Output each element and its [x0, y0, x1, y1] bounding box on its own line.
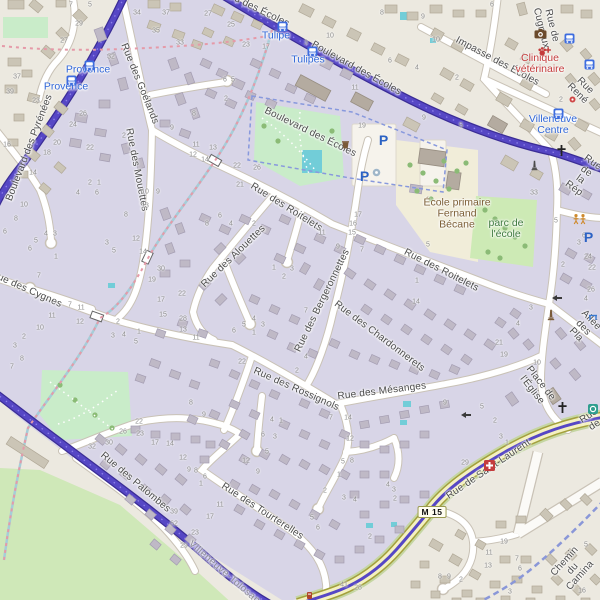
building: [521, 556, 531, 563]
tree-icon: [446, 186, 451, 191]
tree-icon: [329, 128, 334, 133]
building: [360, 471, 369, 478]
building: [453, 10, 464, 17]
building: [581, 10, 592, 18]
tree-icon: [502, 225, 507, 230]
building: [99, 100, 110, 108]
building: [131, 426, 140, 433]
building: [476, 10, 486, 17]
building: [8, 0, 24, 9]
tree-icon: [428, 196, 433, 201]
building: [501, 596, 510, 600]
tree-icon: [407, 162, 412, 167]
tree-icon: [420, 170, 425, 175]
small-park: [3, 17, 48, 38]
building: [380, 471, 389, 478]
building: [500, 556, 510, 563]
building: [380, 446, 389, 453]
building: [171, 433, 180, 440]
pool: [366, 523, 373, 528]
tree-icon: [482, 207, 487, 212]
building: [8, 58, 21, 66]
building: [561, 5, 573, 13]
building: [94, 128, 106, 137]
building: [180, 260, 190, 267]
pool: [108, 283, 115, 288]
tree-icon: [454, 168, 459, 173]
tree-icon: [275, 138, 280, 143]
building: [360, 511, 369, 518]
tree-icon: [492, 216, 497, 221]
building: [359, 420, 369, 428]
building: [14, 114, 24, 121]
building: [418, 148, 446, 166]
map-canvas[interactable]: Boulevard des PyrénéesBoulevard des Écol…: [0, 0, 600, 600]
building: [151, 431, 160, 438]
building: [400, 441, 409, 448]
building: [8, 139, 18, 146]
building: [170, 3, 181, 11]
building: [335, 556, 344, 563]
building: [375, 536, 384, 543]
building: [400, 496, 409, 503]
building: [440, 576, 450, 583]
building: [407, 12, 418, 20]
building: [160, 120, 170, 127]
building: [419, 405, 429, 413]
building: [385, 5, 397, 13]
building: [22, 70, 32, 77]
building: [200, 456, 209, 463]
building: [5, 85, 17, 93]
building: [355, 546, 364, 553]
building: [160, 270, 170, 277]
building: [360, 441, 369, 448]
building: [56, 0, 66, 7]
building: [496, 521, 506, 528]
building: [431, 591, 440, 598]
tree-icon: [463, 160, 468, 165]
building: [462, 590, 472, 597]
building: [69, 138, 81, 148]
building: [420, 491, 429, 498]
tree-icon: [433, 178, 438, 183]
building: [74, 113, 87, 123]
map-graphics: [0, 0, 600, 600]
building: [420, 431, 429, 438]
building: [206, 441, 215, 448]
building: [399, 410, 409, 418]
tree-icon: [261, 123, 266, 128]
tree-icon: [485, 249, 490, 254]
building: [430, 5, 442, 13]
tree-icon: [512, 234, 517, 239]
building: [18, 171, 28, 178]
building: [556, 596, 565, 600]
building: [532, 586, 542, 593]
building: [420, 561, 429, 568]
building: [411, 581, 420, 588]
building: [148, 0, 160, 8]
tree-icon: [414, 188, 419, 193]
building: [395, 526, 404, 533]
building: [439, 400, 449, 408]
building: [490, 581, 500, 588]
school-yard-green: [470, 196, 537, 267]
building: [99, 153, 110, 162]
map-page: { "map": { "street_labels": [ {"text":"B…: [0, 0, 600, 600]
building: [350, 491, 359, 498]
building: [380, 501, 389, 508]
pool: [403, 401, 411, 407]
building: [379, 415, 389, 423]
building: [191, 436, 200, 443]
pool: [400, 420, 407, 425]
tree-icon: [497, 255, 502, 260]
tree-icon: [522, 243, 527, 248]
building: [516, 516, 526, 523]
